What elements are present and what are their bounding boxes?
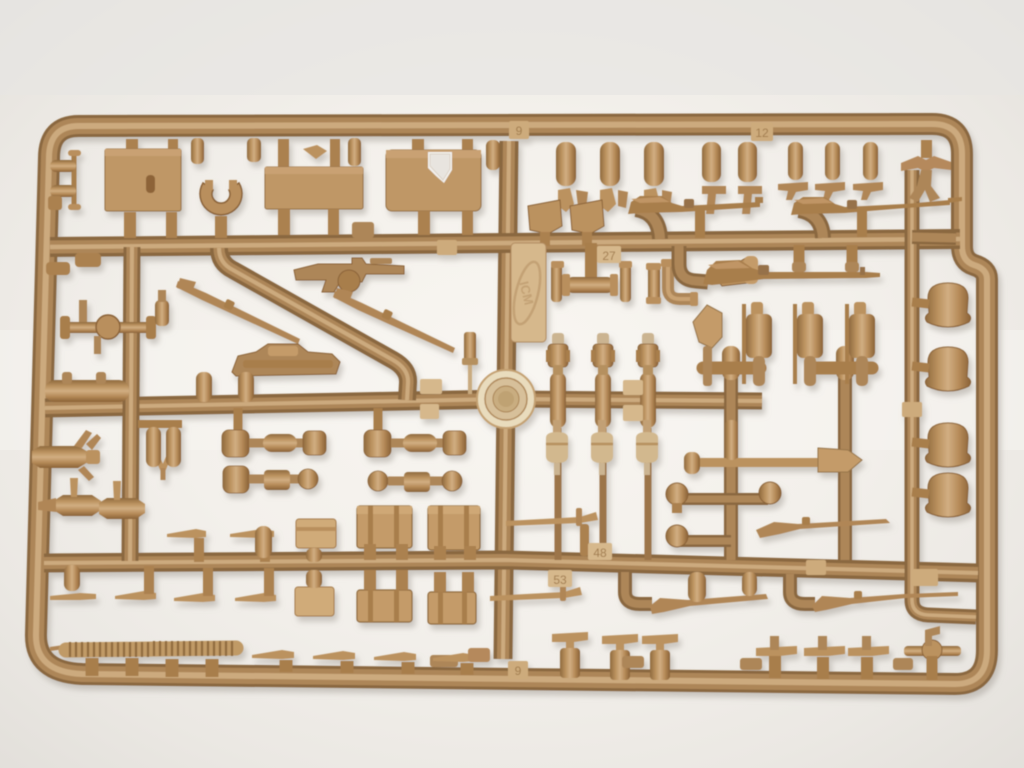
svg-text:9: 9 — [516, 124, 523, 138]
svg-text:27: 27 — [602, 249, 616, 263]
svg-text:48: 48 — [593, 546, 607, 560]
svg-text:9: 9 — [515, 664, 522, 678]
svg-text:53: 53 — [553, 573, 567, 587]
svg-text:12: 12 — [755, 126, 769, 140]
